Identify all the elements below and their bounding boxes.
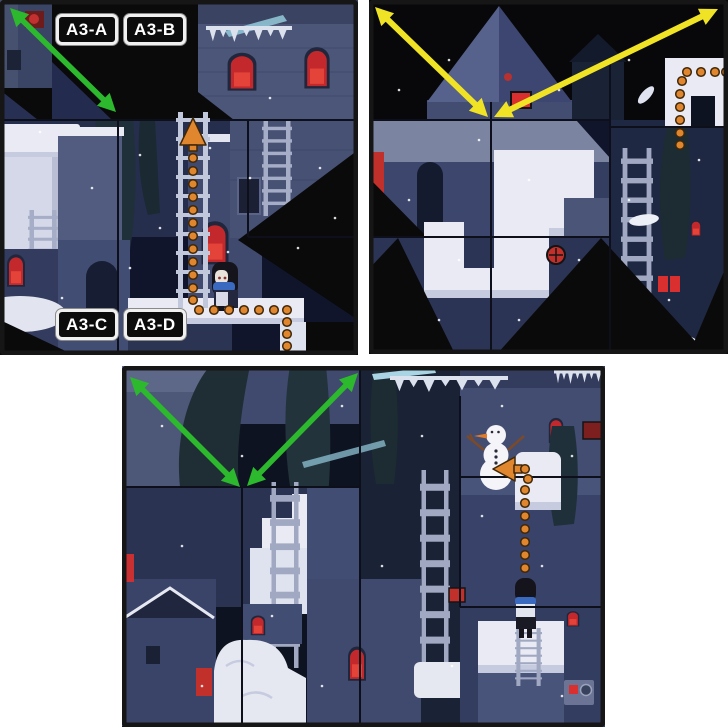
panel-top-right-scene — [369, 0, 728, 354]
red-window — [348, 647, 366, 681]
red-window — [449, 588, 465, 602]
tile-label-a3d: A3-D — [124, 309, 186, 340]
red-window — [658, 276, 668, 292]
panel-top-right — [369, 0, 728, 354]
figure-canvas: A3-A A3-B A3-C A3-D — [0, 0, 728, 728]
player-character — [212, 262, 238, 311]
panel-bottom — [122, 366, 605, 727]
red-window — [7, 254, 25, 286]
top-right-building — [198, 0, 358, 120]
red-sign — [29, 14, 39, 24]
red-window — [567, 611, 580, 626]
red-lamp — [504, 73, 512, 81]
red-window — [691, 220, 702, 236]
red-door — [196, 668, 212, 696]
red-window — [251, 615, 265, 635]
panel-top-left-scene — [0, 0, 358, 355]
tree — [660, 128, 691, 260]
red-window — [228, 53, 257, 91]
red-window — [304, 47, 329, 88]
tile-label-a3a: A3-A — [56, 14, 118, 45]
red-window — [670, 276, 680, 292]
panel-top-left: A3-A A3-B A3-C A3-D — [0, 0, 358, 355]
blue-scarf — [515, 597, 536, 605]
tile-label-a3b: A3-B — [124, 14, 186, 45]
tile-label-a3c: A3-C — [56, 309, 118, 340]
panel-bottom-scene — [122, 366, 605, 727]
